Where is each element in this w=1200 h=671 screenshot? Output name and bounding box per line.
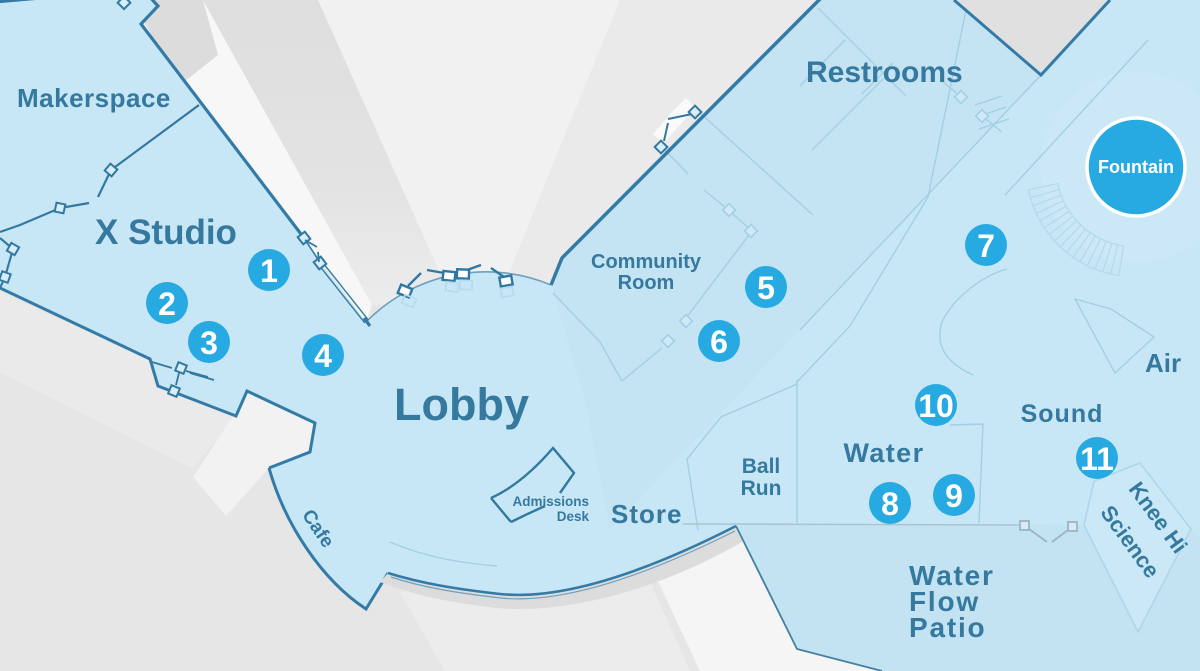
svg-text:Ball: Ball xyxy=(742,455,781,478)
svg-text:Lobby: Lobby xyxy=(394,379,529,430)
svg-text:X Studio: X Studio xyxy=(95,213,237,252)
svg-text:Admissions: Admissions xyxy=(512,494,589,509)
svg-text:7: 7 xyxy=(977,228,995,264)
svg-text:8: 8 xyxy=(881,486,899,522)
svg-text:Water: Water xyxy=(843,438,924,468)
svg-text:Run: Run xyxy=(741,477,782,500)
svg-text:Desk: Desk xyxy=(557,509,590,524)
svg-text:Community: Community xyxy=(591,251,702,273)
svg-text:Patio: Patio xyxy=(909,612,986,643)
svg-text:Room: Room xyxy=(618,272,675,294)
svg-text:5: 5 xyxy=(757,270,775,306)
svg-text:Sound: Sound xyxy=(1021,400,1104,428)
svg-text:11: 11 xyxy=(1080,441,1114,477)
svg-text:3: 3 xyxy=(200,325,218,361)
svg-text:Restrooms: Restrooms xyxy=(806,56,963,89)
svg-text:Makerspace: Makerspace xyxy=(17,83,171,113)
svg-text:9: 9 xyxy=(945,478,963,514)
svg-text:6: 6 xyxy=(710,324,728,360)
svg-text:4: 4 xyxy=(314,338,332,374)
svg-text:2: 2 xyxy=(158,286,176,322)
svg-text:10: 10 xyxy=(918,388,954,424)
svg-text:Store: Store xyxy=(611,499,682,529)
svg-text:1: 1 xyxy=(260,253,278,289)
svg-text:Air: Air xyxy=(1145,348,1181,378)
svg-text:Fountain: Fountain xyxy=(1098,157,1174,177)
